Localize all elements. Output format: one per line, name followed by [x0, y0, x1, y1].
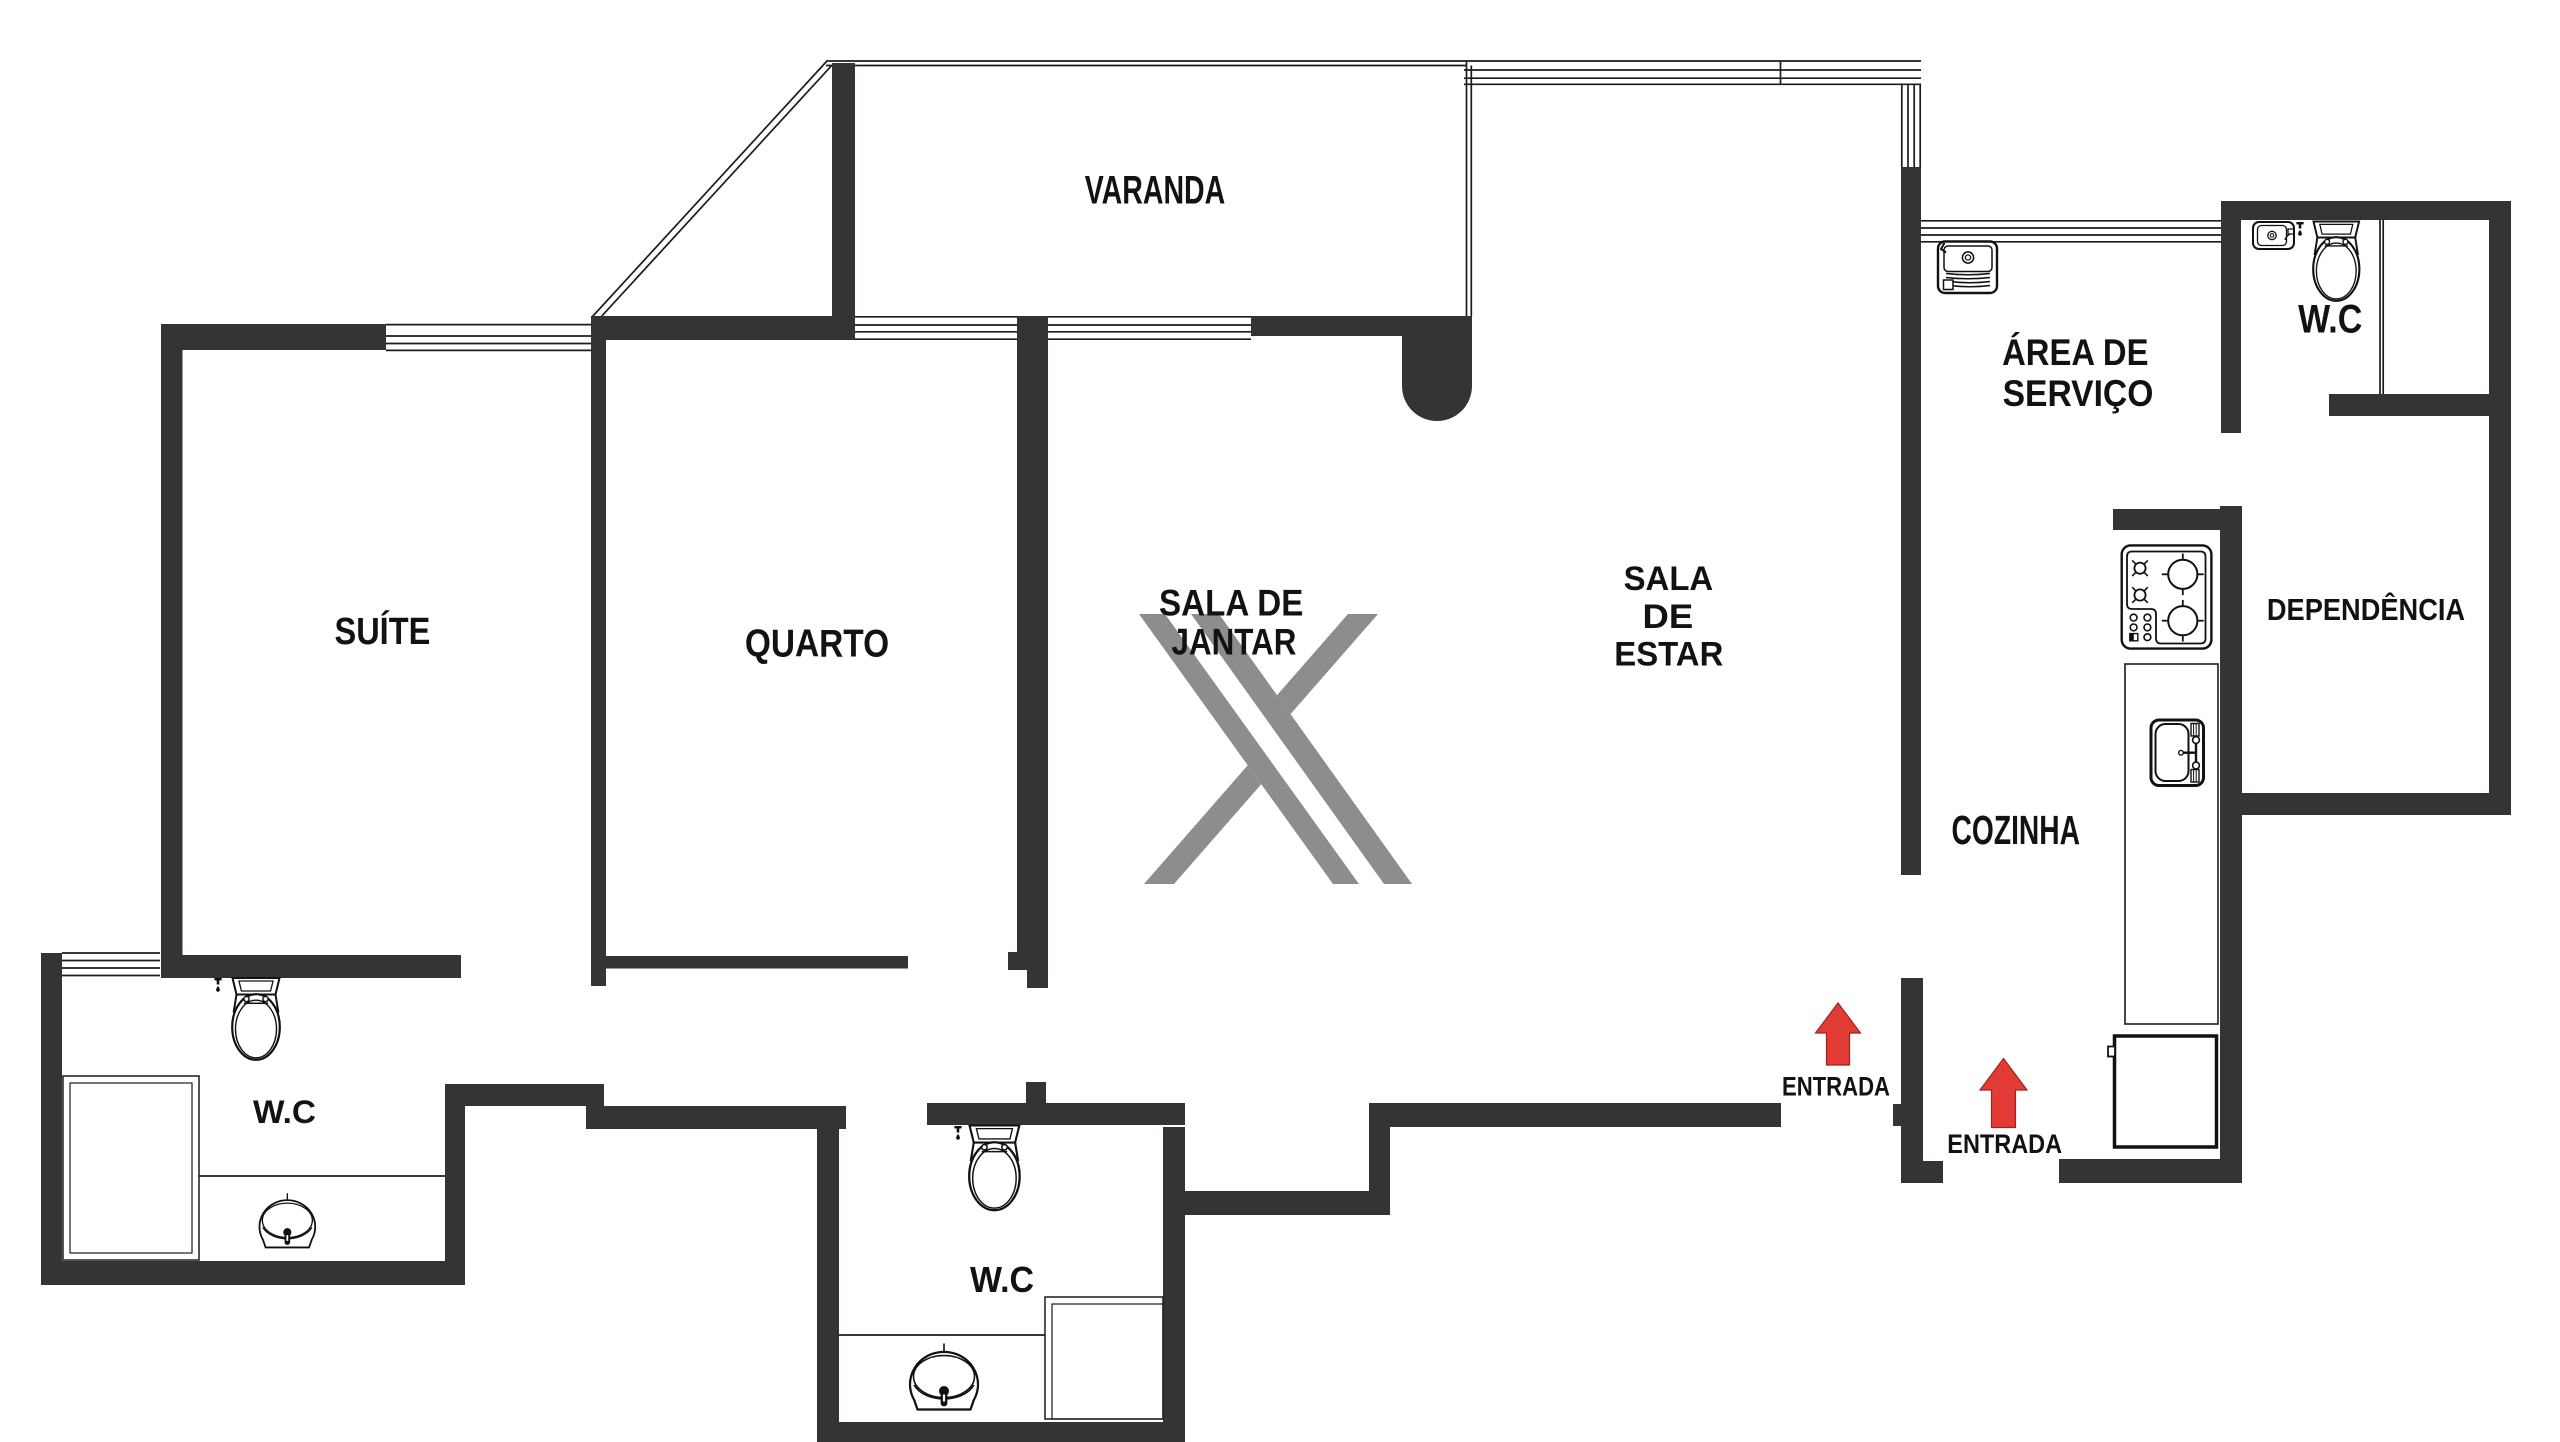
- svg-text:ENTRADA: ENTRADA: [1947, 1129, 2062, 1159]
- svg-text:ÁREA DE: ÁREA DE: [2002, 332, 2148, 373]
- svg-text:SUÍTE: SUÍTE: [335, 609, 431, 653]
- svg-text:ENTRADA: ENTRADA: [1782, 1072, 1890, 1102]
- svg-text:JANTAR: JANTAR: [1172, 621, 1297, 662]
- svg-text:SALA: SALA: [1624, 560, 1714, 598]
- svg-text:COZINHA: COZINHA: [1952, 807, 2081, 853]
- svg-text:W.C: W.C: [2298, 298, 2362, 342]
- svg-text:ESTAR: ESTAR: [1614, 636, 1723, 674]
- svg-text:W.C: W.C: [970, 1259, 1034, 1300]
- svg-text:VARANDA: VARANDA: [1085, 168, 1226, 212]
- svg-text:W.C: W.C: [253, 1094, 316, 1130]
- svg-text:SALA DE: SALA DE: [1159, 583, 1303, 624]
- svg-text:SERVIÇO: SERVIÇO: [2003, 373, 2154, 414]
- svg-text:QUARTO: QUARTO: [745, 622, 889, 665]
- svg-text:DE: DE: [1643, 598, 1694, 636]
- svg-text:DEPENDÊNCIA: DEPENDÊNCIA: [2267, 591, 2465, 627]
